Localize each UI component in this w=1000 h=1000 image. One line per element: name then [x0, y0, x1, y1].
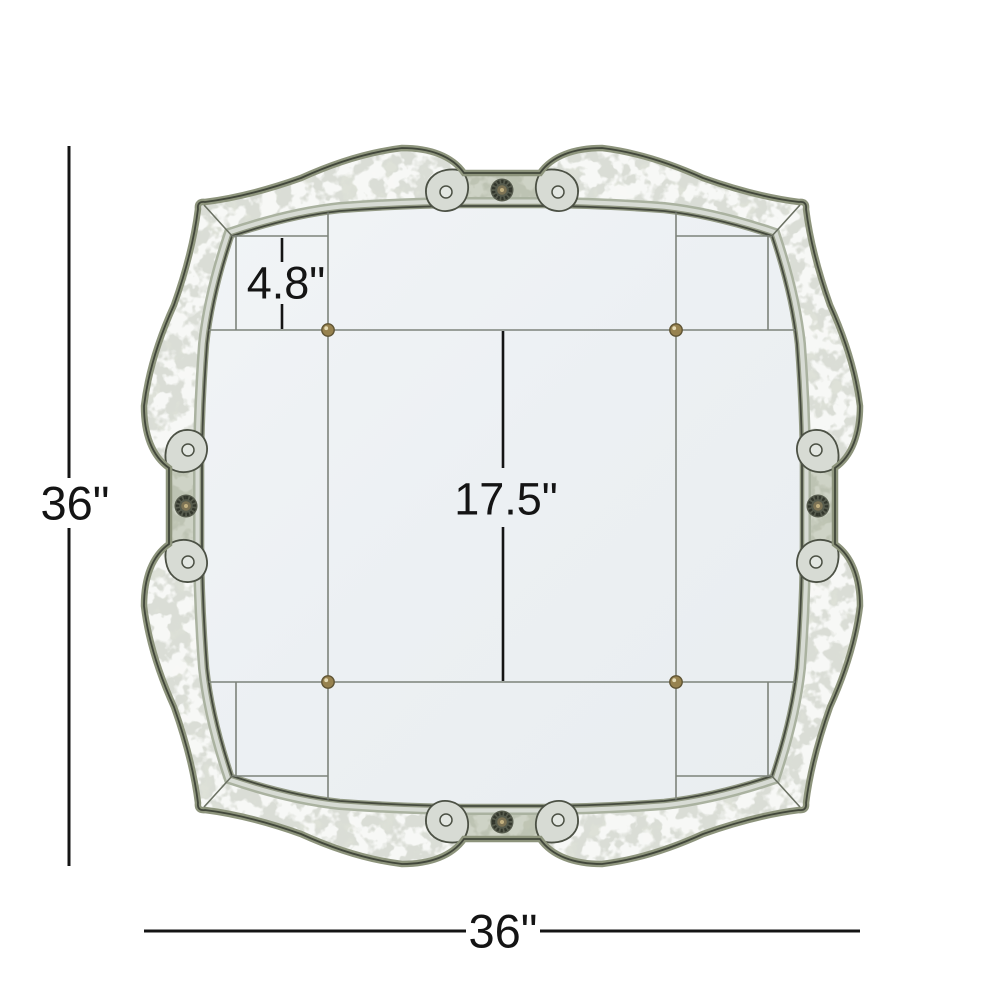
- medallion-icon: [491, 811, 514, 834]
- brass-button-icon: [322, 324, 334, 336]
- width-dimension-label: 36": [469, 905, 538, 958]
- center-dimension-label: 17.5": [454, 474, 558, 525]
- border-dimension-label: 4.8": [247, 258, 326, 309]
- height-dimension-label: 36": [41, 477, 110, 530]
- brass-button-icon: [670, 676, 682, 688]
- medallion-icon: [175, 495, 198, 518]
- dimension-diagram: 36" 36" 4.8" 17.5": [0, 0, 1000, 1000]
- medallion-icon: [807, 495, 830, 518]
- brass-button-icon: [670, 324, 682, 336]
- brass-button-icon: [322, 676, 334, 688]
- medallion-icon: [491, 179, 514, 202]
- mirror-diagram-canvas: 36" 36" 4.8" 17.5": [0, 0, 1000, 1000]
